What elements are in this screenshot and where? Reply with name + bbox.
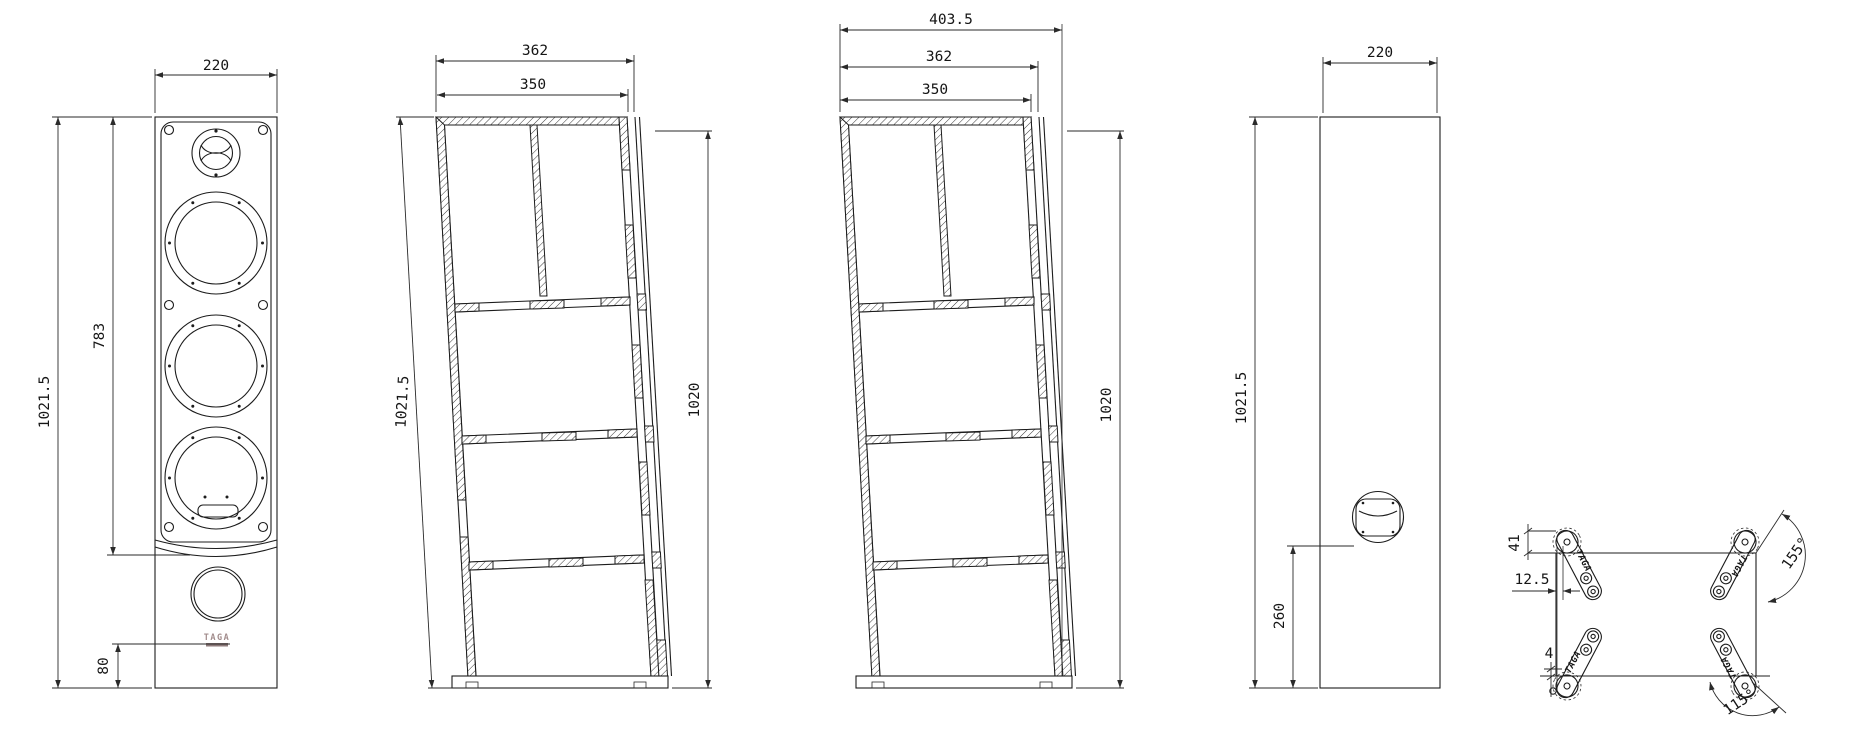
dim-foot-bottom-offset: 4 (1545, 646, 1554, 662)
side-dimensions: 220 1021.5 260 (1234, 45, 1437, 688)
dim-front-total-height: 1021.5 (37, 376, 53, 428)
section-a-shelf-3 (469, 555, 644, 570)
section-a-plinth (452, 676, 668, 688)
front-view: TAGA 220 1021.5 783 80 (37, 58, 277, 688)
woofer-3 (165, 427, 267, 529)
woofer-1 (165, 192, 267, 294)
section-b-vertical-brace (934, 125, 951, 296)
dim-side-width: 220 (1367, 45, 1393, 61)
section-a-vertical-brace (530, 125, 547, 296)
dim-section-b-back-height: 1020 (1099, 388, 1115, 423)
section-b-back-wall (840, 117, 880, 676)
section-b-front-baffle-wall (1023, 117, 1063, 676)
dim-section-a-slant-height: 1021.5 (394, 375, 413, 428)
woofer-2 (165, 315, 267, 417)
dim-side-height: 1021.5 (1234, 372, 1250, 424)
dim-baffle-height: 783 (92, 323, 108, 349)
section-a-shelf-2 (462, 429, 637, 444)
section-a-front-baffle-wall (619, 117, 659, 676)
dim-foot-side-offset: 12.5 (1515, 572, 1550, 588)
section-b-plinth (856, 676, 1072, 688)
brand-logo-bar (206, 643, 228, 647)
section-a-top-wall (436, 117, 627, 125)
section-a-back-wall (436, 117, 476, 676)
section-a-view: 362 350 1021.5 1020 (394, 43, 712, 688)
speaker-dimension-drawing: TAGA (0, 0, 1858, 738)
outrigger-foot-top-right (1703, 523, 1764, 605)
front-cabinet-outline (155, 117, 277, 688)
dim-section-a-depth: 350 (520, 77, 546, 93)
brand-logo-text: TAGA (204, 633, 230, 643)
dim-section-a-depth-grille: 362 (522, 43, 548, 59)
section-b-shelf-3 (873, 555, 1048, 570)
side-cabinet-outline (1320, 117, 1440, 688)
brand-logo: TAGA (204, 633, 230, 647)
dim-section-a-back-height: 1020 (687, 383, 703, 418)
outrigger-foot-bottom-right (1703, 623, 1764, 705)
section-b-shelf-2 (866, 429, 1041, 444)
dim-port-height: 260 (1272, 603, 1288, 629)
section-b-shelf-1 (859, 297, 1034, 312)
dim-foot-top-offset: 41 (1507, 534, 1523, 551)
dim-section-b-depth-grille: 362 (926, 49, 952, 65)
front-bass-port (191, 567, 245, 621)
rear-port (1353, 492, 1404, 543)
dim-section-b-total-depth: 403.5 (929, 12, 973, 28)
section-b-top-wall (840, 117, 1031, 125)
side-view: 220 1021.5 260 (1234, 45, 1440, 688)
section-b-view: 403.5 362 350 1020 (840, 12, 1124, 688)
woofer-3-vent (198, 496, 238, 518)
section-b-dimensions: 403.5 362 350 1020 (840, 12, 1124, 688)
baffle-screws (165, 126, 268, 532)
base-view: 41 12.5 4 155° 115° (1507, 510, 1812, 719)
baffle-bottom-trim-arc (155, 540, 277, 549)
front-dimensions: 220 1021.5 783 80 (37, 58, 277, 688)
tweeter (192, 129, 240, 177)
dim-front-width: 220 (203, 58, 229, 74)
dim-section-b-depth: 350 (922, 82, 948, 98)
section-a-shelf-1 (455, 297, 630, 312)
technical-drawing-canvas: TAGA (0, 0, 1858, 738)
dim-front-foot-angle: 155° (1779, 535, 1812, 573)
dim-logo-offset: 80 (96, 657, 112, 674)
